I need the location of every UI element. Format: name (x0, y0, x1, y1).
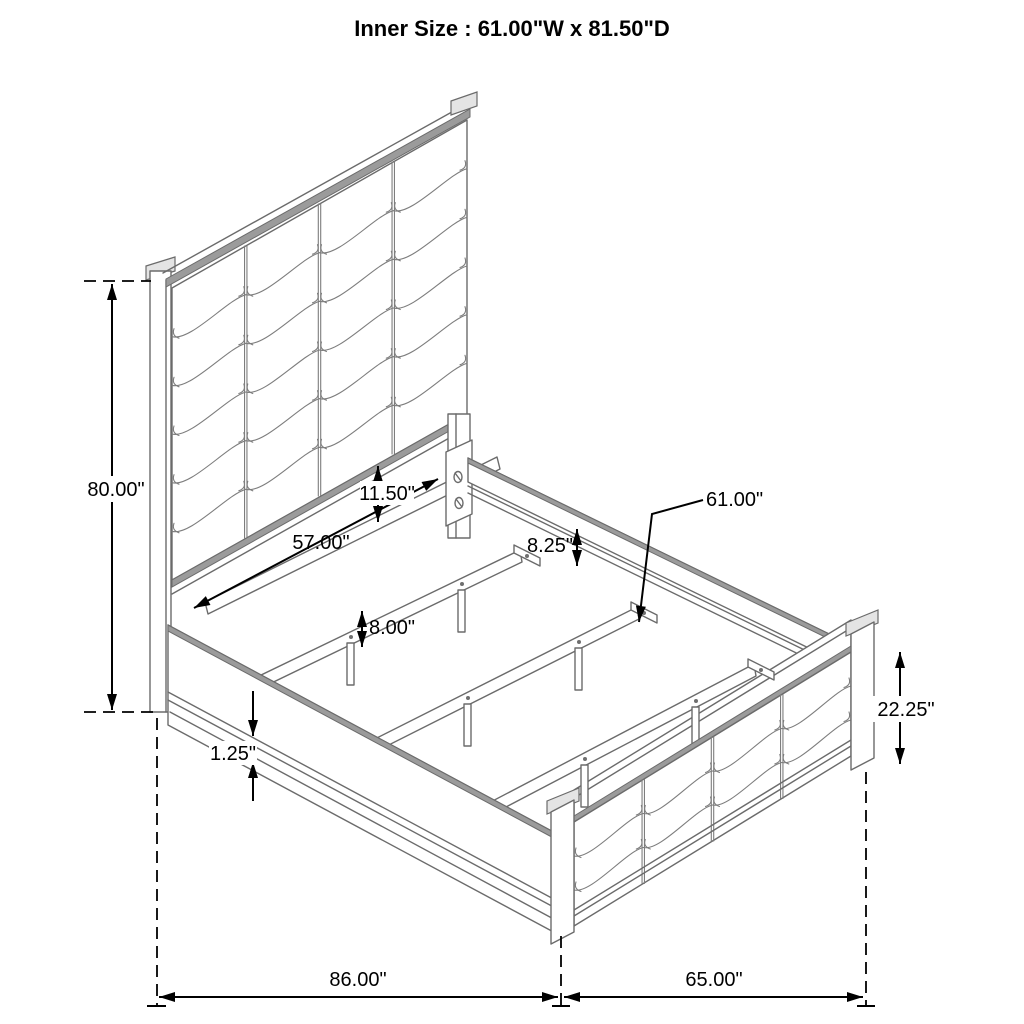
dim-footboard-height: 22.25" (877, 699, 934, 721)
bed-dimension-diagram-page: 80.00" 57.00" 11.50" 8.25" 61.00" 8.00" … (0, 0, 1024, 1024)
page-title: Inner Size : 61.00"W x 81.50"D (354, 16, 670, 41)
support-leg (458, 590, 465, 632)
dim-overall-width: 65.00" (685, 969, 742, 991)
dim-headboard-height: 80.00" (87, 479, 144, 501)
dim-overall-depth: 86.00" (329, 969, 386, 991)
support-leg (347, 643, 354, 685)
bed-dimension-diagram: 80.00" 57.00" 11.50" 8.25" 61.00" 8.00" … (0, 0, 1024, 1024)
near-rail-face (168, 625, 561, 936)
dim-support-leg-height: 8.00" (369, 617, 415, 639)
headboard (146, 92, 500, 712)
footboard-right-post (851, 622, 874, 770)
footboard-left-post (551, 800, 574, 944)
dim-rail-to-slat-drop: 8.25" (527, 535, 573, 557)
dim-headboard-to-cleat: 11.50" (359, 483, 415, 505)
headboard-right-post-cap (451, 92, 477, 115)
dim-rail-trim-thickness: 1.25" (210, 743, 256, 765)
support-leg (575, 648, 582, 690)
dim-slat-length: 61.00" (706, 489, 763, 511)
dim-cleat-length: 57.00" (292, 532, 349, 554)
support-leg (464, 704, 471, 746)
support-leg (581, 765, 588, 807)
near-side-rail (168, 625, 561, 936)
